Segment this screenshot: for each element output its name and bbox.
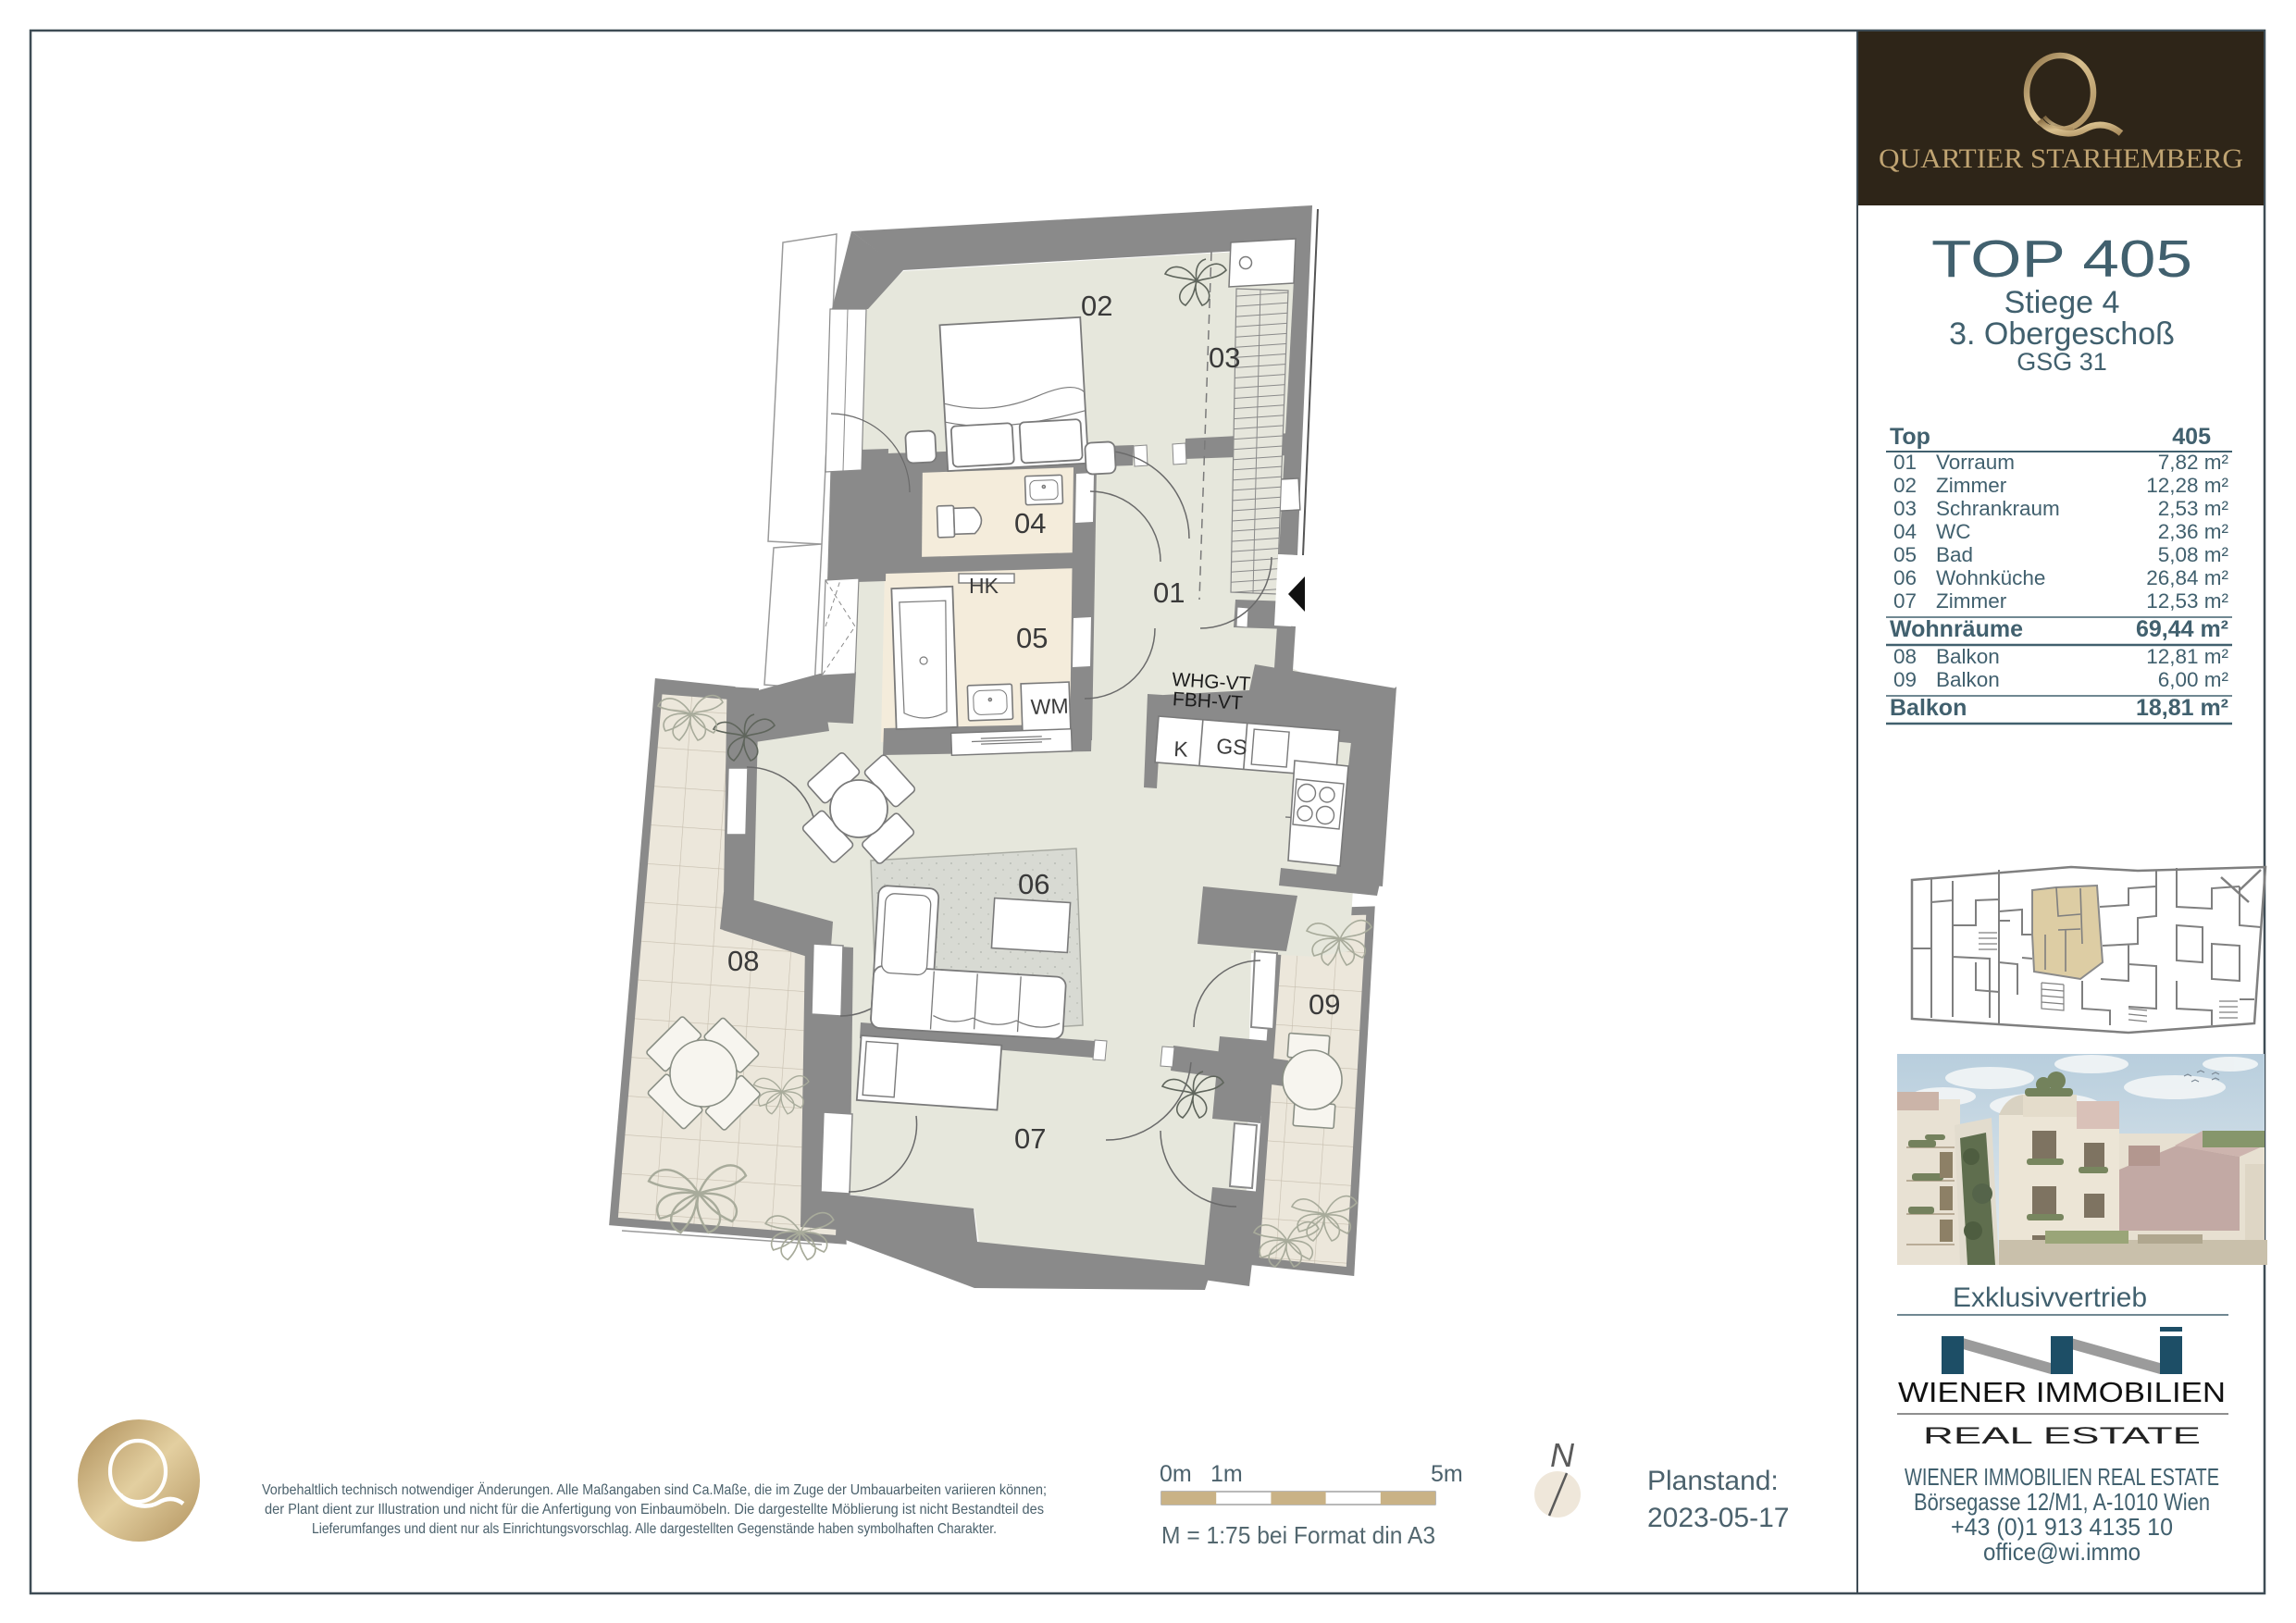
svg-text:09: 09 [1893,668,1917,691]
svg-text:12,53 m²: 12,53 m² [2146,589,2228,613]
svg-text:HK: HK [969,574,999,598]
svg-text:office@wi.immo: office@wi.immo [1983,1538,2141,1566]
svg-text:Zimmer: Zimmer [1936,474,2007,497]
svg-text:Börsegasse 12/M1, A-1010 Wien: Börsegasse 12/M1, A-1010 Wien [1914,1488,2210,1516]
svg-text:6,00 m²: 6,00 m² [2158,668,2229,691]
svg-text:Vorbehaltlich technisch notwen: Vorbehaltlich technisch notwendiger Ände… [262,1481,1047,1498]
svg-text:04: 04 [1893,520,1917,543]
svg-text:N: N [1550,1436,1575,1474]
svg-text:3. Obergeschoß: 3. Obergeschoß [1949,316,2175,352]
svg-text:08: 08 [727,945,759,977]
svg-text:+43 (0)1 913 4135 10: +43 (0)1 913 4135 10 [1951,1513,2173,1541]
svg-text:03: 03 [1209,341,1240,374]
svg-text:TOP 405: TOP 405 [1931,229,2192,289]
svg-text:405: 405 [2172,424,2211,450]
svg-text:WIENER IMMOBILIEN: WIENER IMMOBILIEN [1898,1376,2226,1408]
svg-text:01: 01 [1893,451,1917,474]
svg-text:WIENER IMMOBILIEN REAL ESTATE: WIENER IMMOBILIEN REAL ESTATE [1905,1463,2219,1491]
svg-text:Top: Top [1890,424,1930,450]
svg-text:Vorraum: Vorraum [1936,451,2015,474]
svg-text:5,08 m²: 5,08 m² [2158,543,2229,566]
svg-text:Planstand:: Planstand: [1647,1466,1779,1496]
svg-text:Wohnräume: Wohnräume [1890,616,2023,642]
svg-text:12,81 m²: 12,81 m² [2146,645,2228,668]
svg-text:QUARTIER STARHEMBERG: QUARTIER STARHEMBERG [1879,143,2243,174]
svg-text:07: 07 [1014,1122,1046,1155]
svg-text:Lieferumfanges und dient nur a: Lieferumfanges und dient nur als Einrich… [312,1521,997,1537]
svg-text:GS: GS [1216,734,1248,760]
svg-text:WC: WC [1936,520,1971,543]
svg-text:GSG 31: GSG 31 [2017,348,2107,376]
svg-text:Wohnküche: Wohnküche [1936,566,2045,589]
svg-text:Balkon: Balkon [1936,668,2000,691]
svg-text:Exklusivvertrieb: Exklusivvertrieb [1953,1282,2147,1313]
svg-text:02: 02 [1893,474,1917,497]
svg-text:18,81 m²: 18,81 m² [2136,695,2228,721]
svg-text:Schrankraum: Schrankraum [1936,497,2060,520]
svg-text:07: 07 [1893,589,1917,613]
svg-text:26,84 m²: 26,84 m² [2146,566,2228,589]
svg-text:1m: 1m [1210,1461,1243,1487]
svg-text:69,44 m²: 69,44 m² [2136,616,2228,642]
svg-text:03: 03 [1893,497,1917,520]
svg-text:Bad: Bad [1936,543,1973,566]
svg-text:2,36 m²: 2,36 m² [2158,520,2229,543]
svg-text:09: 09 [1309,988,1340,1021]
svg-text:2,53 m²: 2,53 m² [2158,497,2229,520]
svg-text:05: 05 [1893,543,1917,566]
svg-text:08: 08 [1893,645,1917,668]
svg-text:der Plant dient zur Illustrati: der Plant dient zur Illustration und nic… [265,1502,1044,1518]
svg-text:Zimmer: Zimmer [1936,589,2007,613]
svg-text:K: K [1173,737,1189,762]
svg-text:WM: WM [1030,694,1069,719]
svg-text:7,82 m²: 7,82 m² [2158,451,2229,474]
svg-text:01: 01 [1153,576,1185,609]
svg-text:M = 1:75 bei Format din A3: M = 1:75 bei Format din A3 [1161,1521,1435,1549]
svg-text:04: 04 [1014,507,1046,539]
svg-text:Stiege 4: Stiege 4 [2004,285,2120,320]
svg-text:FBH-VT: FBH-VT [1172,688,1243,714]
svg-text:06: 06 [1018,868,1049,900]
svg-text:5m: 5m [1431,1461,1463,1487]
svg-text:0m: 0m [1160,1461,1192,1487]
svg-text:Balkon: Balkon [1936,645,2000,668]
svg-text:2023-05-17: 2023-05-17 [1647,1503,1789,1533]
svg-text:06: 06 [1893,566,1917,589]
svg-text:12,28 m²: 12,28 m² [2146,474,2228,497]
svg-text:05: 05 [1016,622,1048,654]
svg-text:02: 02 [1081,290,1112,322]
svg-text:Balkon: Balkon [1890,695,1967,721]
svg-text:REAL ESTATE: REAL ESTATE [1923,1423,2201,1449]
